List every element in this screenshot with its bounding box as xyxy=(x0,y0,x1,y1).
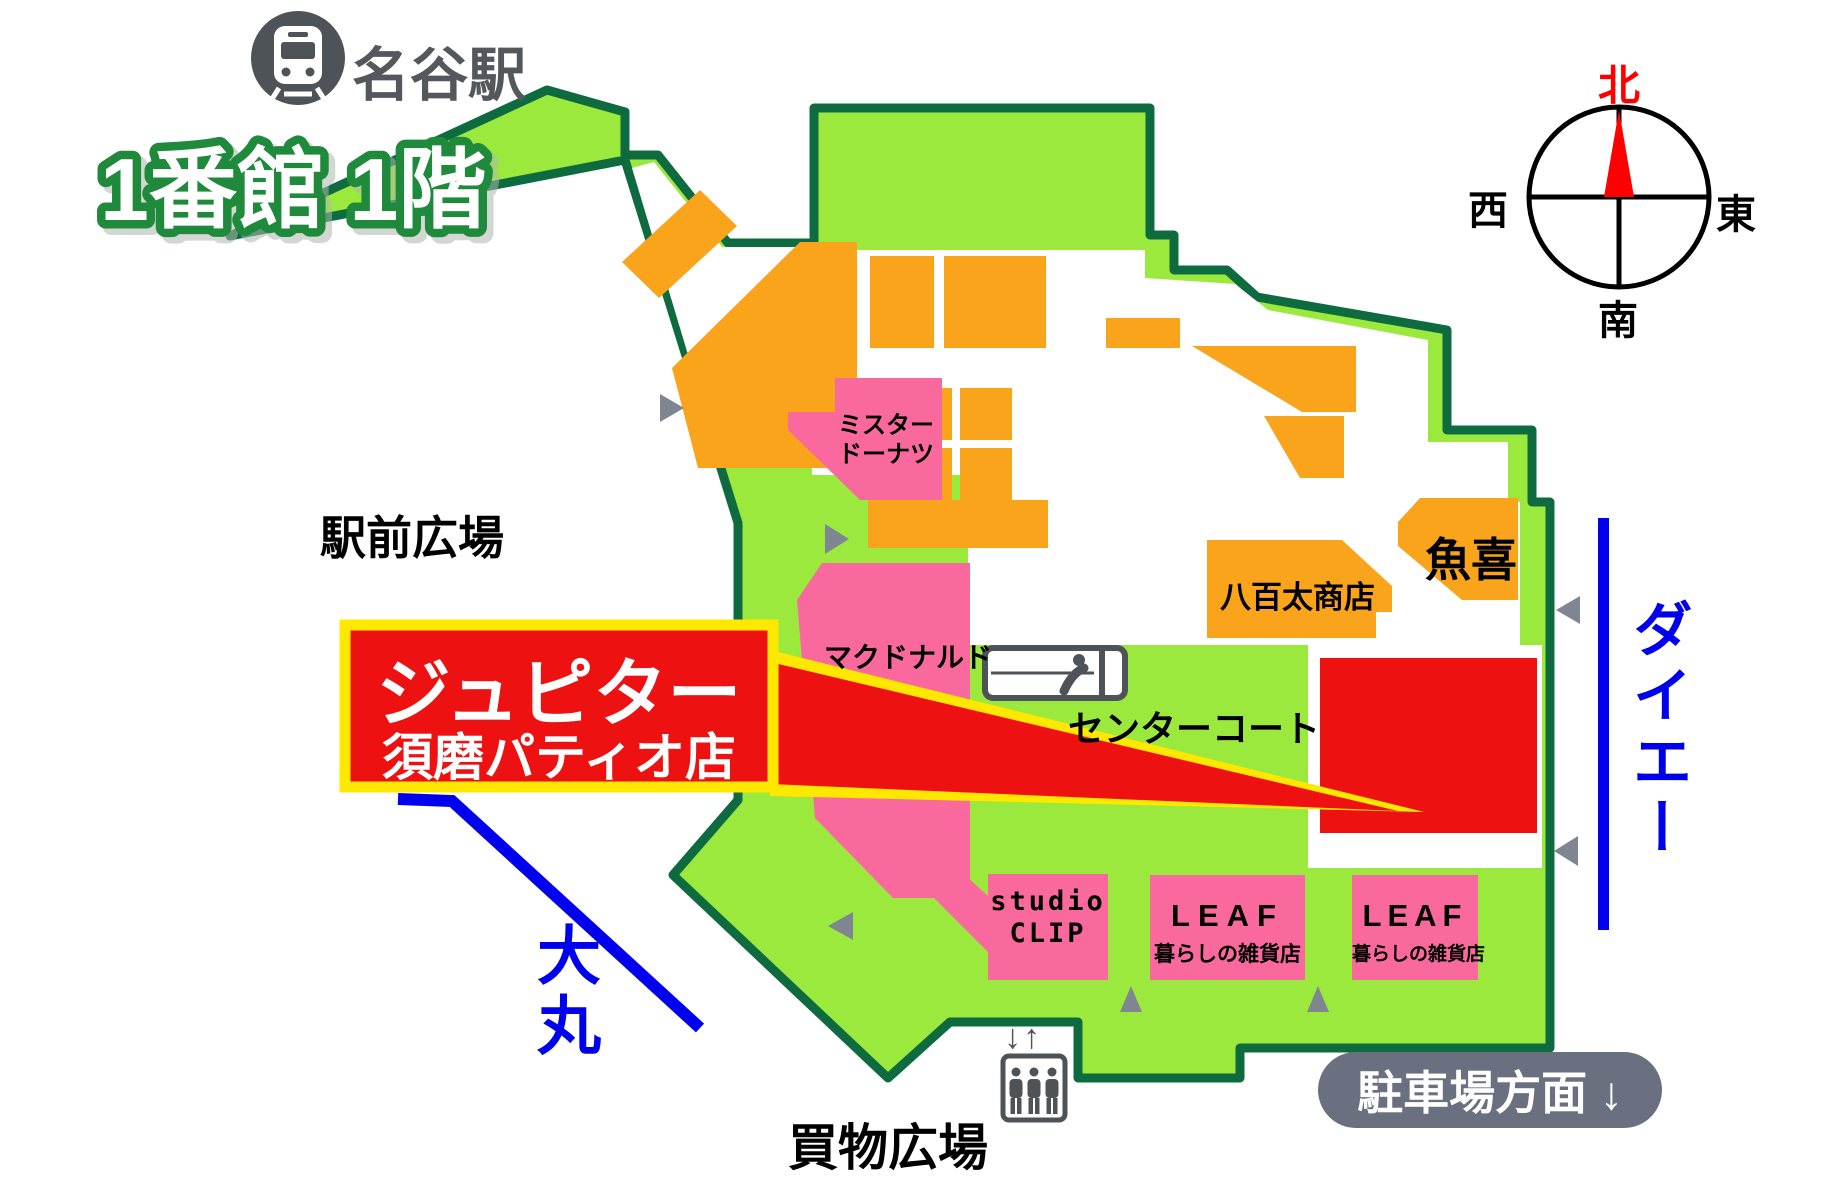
shop-label-mcdonalds: マクドナルド xyxy=(824,636,992,676)
neighbor-daimaru: 大丸 xyxy=(518,922,610,1072)
shop-label-mister-donut-line2: ドーナツ xyxy=(818,441,954,470)
parking-direction-label: 駐車場方面 ↓ xyxy=(1357,1057,1623,1123)
parking-direction-badge: 駐車場方面 ↓ xyxy=(1318,1052,1662,1128)
compass-north-label: 北 xyxy=(1598,52,1640,113)
elevator-arrows: ↓↑ xyxy=(1004,1018,1042,1057)
elevator-icon xyxy=(1003,1056,1065,1120)
compass-west-label: 西 xyxy=(1468,178,1508,236)
compass-needle xyxy=(1604,110,1634,197)
shop-label-yaota: 八百太商店 xyxy=(1220,572,1375,617)
area-center-court: センターコート xyxy=(1068,700,1308,752)
shop-block xyxy=(868,500,1048,548)
shop-block xyxy=(960,448,1012,500)
direction-arrow xyxy=(1556,596,1580,624)
shop-label-leaf1-name: LEAF xyxy=(1150,898,1305,934)
compass-east-label: 東 xyxy=(1716,182,1756,240)
train-station-icon xyxy=(251,11,345,105)
shop-label-leaf2-subtitle: 暮らしの雑貨店 xyxy=(1352,939,1478,966)
shop-block xyxy=(870,256,934,348)
shop-block xyxy=(960,388,1012,440)
shop-label-mister-donut-line1: ミスター xyxy=(818,412,954,441)
area-shopping-plaza: 買物広場 xyxy=(788,1108,988,1177)
escalator-icon xyxy=(985,648,1125,698)
shop-label-studio-clip-line2: CLIP xyxy=(988,918,1108,950)
area-station-plaza: 駅前広場 xyxy=(320,502,504,568)
floor-map: 1番館 1階 1番館 1階 xyxy=(0,0,1842,1177)
page-title: 1番館 1階 xyxy=(100,140,486,239)
shop-block xyxy=(944,256,1046,348)
map-canvas: 1番館 1階 1番館 1階 xyxy=(0,0,1842,1177)
shop-label-uoki: 魚喜 xyxy=(1425,524,1517,590)
station-name: 名谷駅 xyxy=(352,28,526,112)
shop-label-studio-clip-line1: studio xyxy=(988,886,1108,918)
shop-block xyxy=(1106,318,1180,348)
neighbor-daiei: ダイエー xyxy=(1614,598,1701,898)
compass-south-label: 南 xyxy=(1598,288,1638,346)
shop-label-leaf2-name: LEAF xyxy=(1352,898,1478,934)
daiei-boundary-line xyxy=(1598,518,1609,930)
compass-icon xyxy=(1528,107,1710,288)
direction-arrow xyxy=(1554,836,1578,866)
highlight-store-branch: 須磨パティオ店 xyxy=(345,716,773,790)
shop-label-leaf1-subtitle: 暮らしの雑貨店 xyxy=(1150,938,1305,968)
